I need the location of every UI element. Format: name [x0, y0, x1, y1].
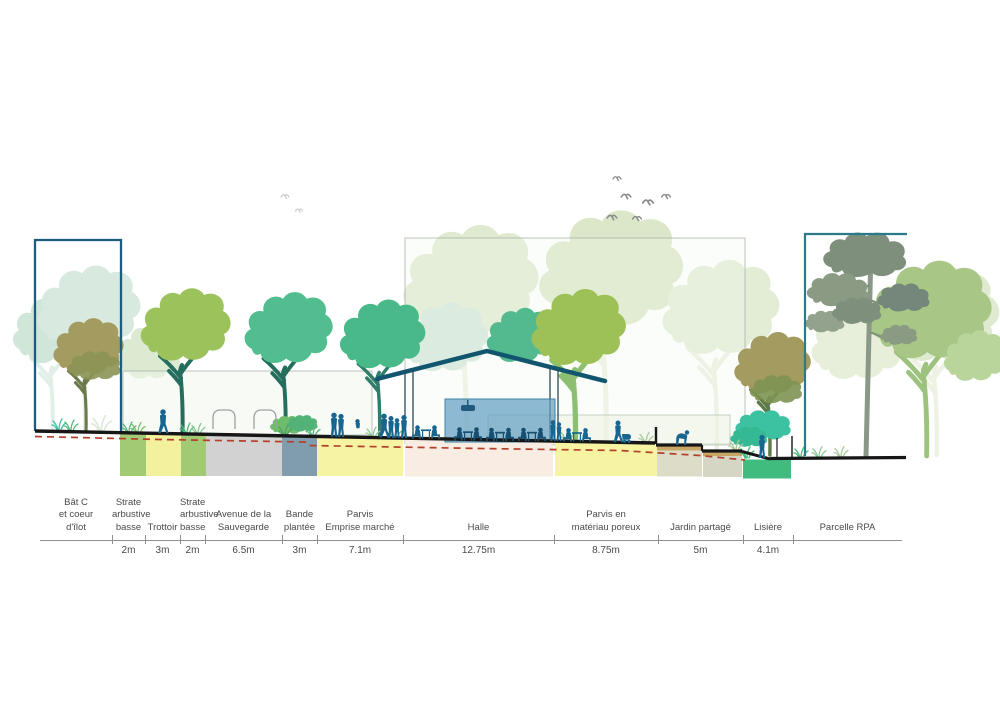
segment-dimension: 4.1m [743, 545, 793, 556]
dimension-tick [145, 535, 146, 544]
segment-label: Bât C et coeur d'îlot [40, 497, 112, 534]
segment-dimension: 2m [180, 545, 205, 556]
segment-label: Avenue de la Sauvegarde [205, 509, 282, 534]
dimension-tick [554, 535, 555, 544]
dimension-tick [112, 535, 113, 544]
dimension-tick [658, 535, 659, 544]
section-drawing-stage: Bât C et coeur d'îlotStrate arbustive ba… [0, 0, 1000, 707]
dimension-baseline [40, 540, 902, 541]
segment-label: Parcelle RPA [793, 522, 902, 534]
segment-dimension: 7.1m [317, 545, 403, 556]
dimension-tick [180, 535, 181, 544]
segment-label: Lisière [743, 522, 793, 534]
segment-label: Bande plantée [282, 509, 317, 534]
segment-label: Jardin partagé [658, 522, 743, 534]
segment-dimension: 3m [145, 545, 180, 556]
dimension-tick [282, 535, 283, 544]
segment-label: Parvis Emprise marché [317, 509, 403, 534]
segment-label: Strate arbustive basse [180, 497, 205, 534]
dimension-tick [205, 535, 206, 544]
dimension-tick [403, 535, 404, 544]
segment-dimension: 8.75m [554, 545, 658, 556]
dimension-tick [743, 535, 744, 544]
segment-label: Parvis en matériau poreux [554, 509, 658, 534]
segment-label: Halle [403, 522, 554, 534]
segment-dimension: 2m [112, 545, 145, 556]
segment-dimension: 3m [282, 545, 317, 556]
segment-label: Strate arbustive basse [112, 497, 145, 534]
dimension-layer: Bât C et coeur d'îlotStrate arbustive ba… [0, 0, 1000, 707]
segment-dimension: 6.5m [205, 545, 282, 556]
segment-dimension: 12.75m [403, 545, 554, 556]
dimension-tick [317, 535, 318, 544]
dimension-tick [793, 535, 794, 544]
segment-label: Trottoir [145, 522, 180, 534]
segment-dimension: 5m [658, 545, 743, 556]
